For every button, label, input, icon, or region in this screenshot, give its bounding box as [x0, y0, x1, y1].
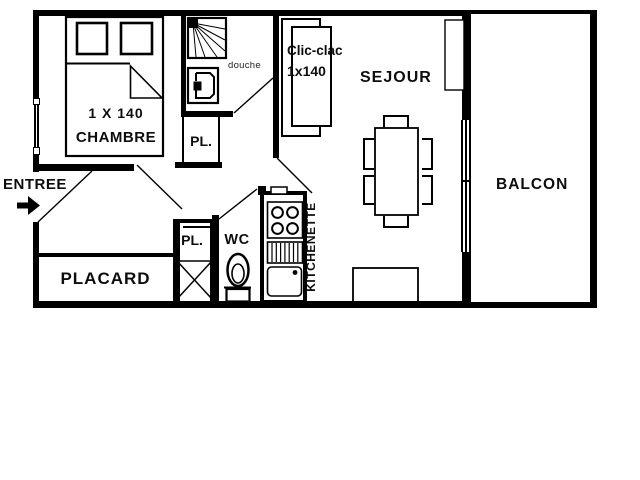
chair: [364, 139, 374, 169]
chambre-door-swing: [137, 165, 182, 209]
blanket-fold: [131, 66, 163, 98]
entry-arrow-icon: [17, 196, 40, 215]
toilet-icon: [224, 254, 251, 302]
tap: [271, 187, 287, 194]
clic-clac-label: Clic-clac: [287, 44, 343, 58]
shower-icon: [188, 18, 226, 58]
dining-table: [375, 128, 418, 215]
douche-door-swing: [234, 78, 273, 113]
chair: [422, 176, 432, 204]
kitchenette-counter: [262, 187, 305, 302]
room-label-douche: douche: [228, 61, 261, 71]
room-label-placard: PLACARD: [38, 270, 173, 287]
chair: [384, 216, 408, 227]
chair: [384, 116, 408, 127]
wc-door-swing: [219, 189, 257, 219]
floor-plan: ENTREE 1 X 140 CHAMBRE douche PL. PL. WC…: [0, 0, 640, 480]
room-label-closet-lower: PL.: [173, 233, 211, 247]
sofa-bench: [353, 268, 418, 302]
room-label-chambre: CHAMBRE: [66, 130, 166, 145]
drainboard-icon: [268, 242, 303, 263]
room-label-closet-upper: PL.: [183, 134, 219, 148]
room-label-entree: ENTREE: [3, 177, 67, 192]
pillow: [77, 23, 107, 54]
door-swings: [38, 78, 312, 222]
clic-clac-size-label: 1x140: [287, 64, 326, 78]
balcony-door-leaf: [445, 20, 464, 90]
pillow: [121, 23, 152, 54]
bed-size-label: 1 X 140: [66, 106, 166, 120]
chair: [364, 176, 374, 204]
chair: [422, 139, 432, 169]
washbasin-icon: [188, 68, 218, 103]
room-label-wc: WC: [214, 233, 260, 248]
stove-icon: [268, 202, 303, 238]
room-label-balcon: BALCON: [496, 177, 568, 193]
closet-x-symbol: [178, 261, 211, 298]
room-label-kitchenette: KITCHENETTE: [305, 192, 319, 302]
room-label-sejour: SEJOUR: [360, 70, 432, 86]
sink-icon: [268, 267, 302, 296]
